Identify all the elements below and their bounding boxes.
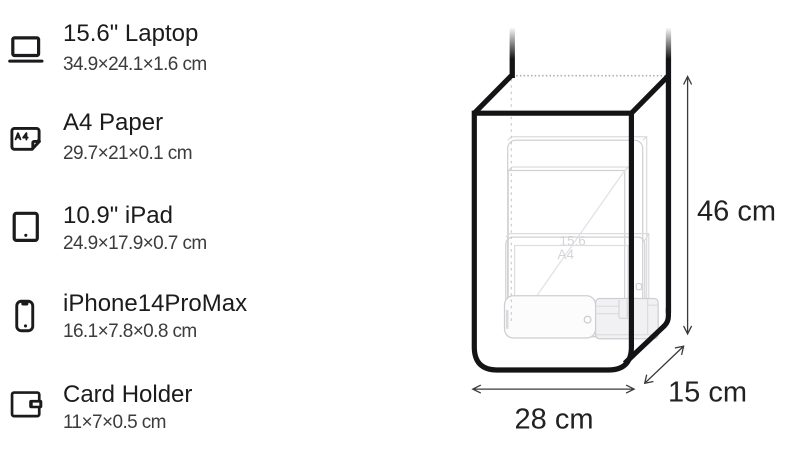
svg-text:15 cm: 15 cm	[668, 377, 747, 409]
svg-text:46 cm: 46 cm	[697, 196, 776, 228]
svg-text:A4: A4	[558, 247, 575, 262]
svg-text:28 cm: 28 cm	[515, 404, 594, 436]
